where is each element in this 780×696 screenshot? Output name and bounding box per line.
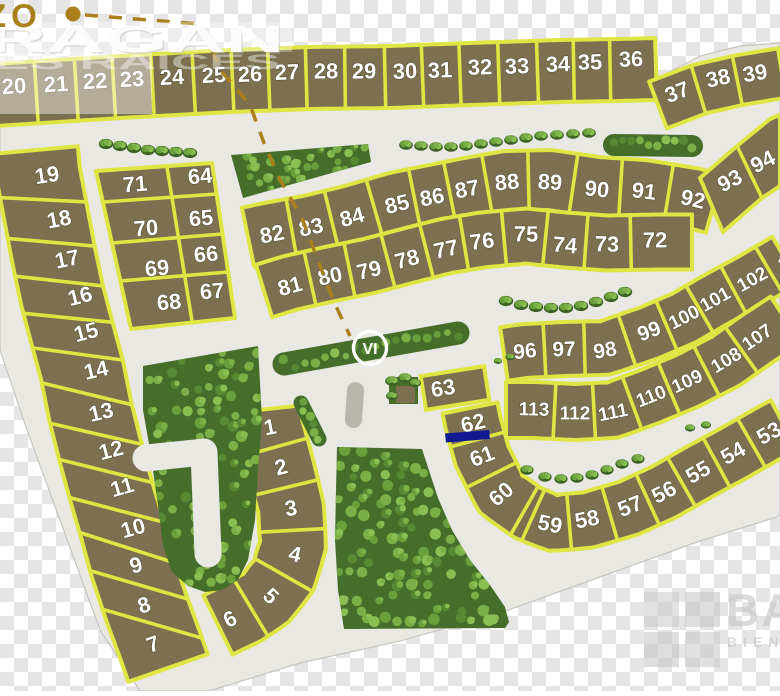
svg-text:96: 96 [512, 339, 537, 364]
svg-text:VI: VI [362, 341, 377, 358]
svg-text:83: 83 [296, 212, 325, 242]
svg-text:72: 72 [643, 227, 668, 252]
svg-text:74: 74 [552, 231, 579, 258]
svg-text:64: 64 [187, 162, 214, 189]
svg-text:63: 63 [429, 374, 457, 403]
svg-text:31: 31 [427, 57, 452, 83]
svg-text:88: 88 [494, 168, 521, 195]
svg-text:32: 32 [467, 54, 492, 80]
svg-text:35: 35 [578, 49, 603, 74]
svg-text:65: 65 [188, 204, 215, 231]
svg-text:34: 34 [545, 51, 571, 77]
svg-text:ES RAICES: ES RAICES [0, 51, 280, 74]
svg-text:BA: BA [726, 584, 780, 636]
svg-text:86: 86 [418, 182, 447, 211]
svg-text:76: 76 [468, 227, 495, 255]
svg-text:36: 36 [618, 46, 643, 72]
svg-text:28: 28 [314, 58, 339, 83]
svg-text:66: 66 [193, 240, 220, 267]
svg-text:90: 90 [584, 175, 611, 202]
svg-text:58: 58 [573, 504, 602, 533]
svg-text:77: 77 [431, 234, 460, 264]
svg-text:87: 87 [453, 174, 482, 203]
svg-text:112: 112 [560, 403, 591, 424]
svg-text:67: 67 [199, 277, 226, 304]
svg-text:71: 71 [122, 170, 149, 197]
svg-text:91: 91 [630, 177, 657, 205]
svg-text:68: 68 [156, 288, 183, 315]
svg-text:33: 33 [504, 53, 529, 79]
svg-text:75: 75 [514, 221, 539, 246]
svg-text:73: 73 [594, 231, 619, 257]
svg-text:30: 30 [392, 58, 417, 84]
svg-text:39: 39 [741, 59, 769, 88]
svg-text:113: 113 [518, 399, 549, 421]
svg-text:29: 29 [352, 58, 377, 83]
svg-text:82: 82 [258, 219, 287, 248]
svg-text:69: 69 [144, 254, 171, 281]
svg-text:98: 98 [592, 337, 619, 364]
svg-text:ZO: ZO [0, 0, 42, 34]
svg-text:59: 59 [535, 509, 564, 538]
svg-text:18: 18 [45, 204, 74, 233]
svg-text:70: 70 [133, 214, 160, 241]
svg-text:BIEN: BIEN [727, 634, 780, 650]
svg-text:19: 19 [33, 161, 61, 189]
svg-text:97: 97 [552, 338, 576, 362]
svg-text:89: 89 [537, 169, 563, 195]
svg-text:17: 17 [52, 244, 81, 273]
